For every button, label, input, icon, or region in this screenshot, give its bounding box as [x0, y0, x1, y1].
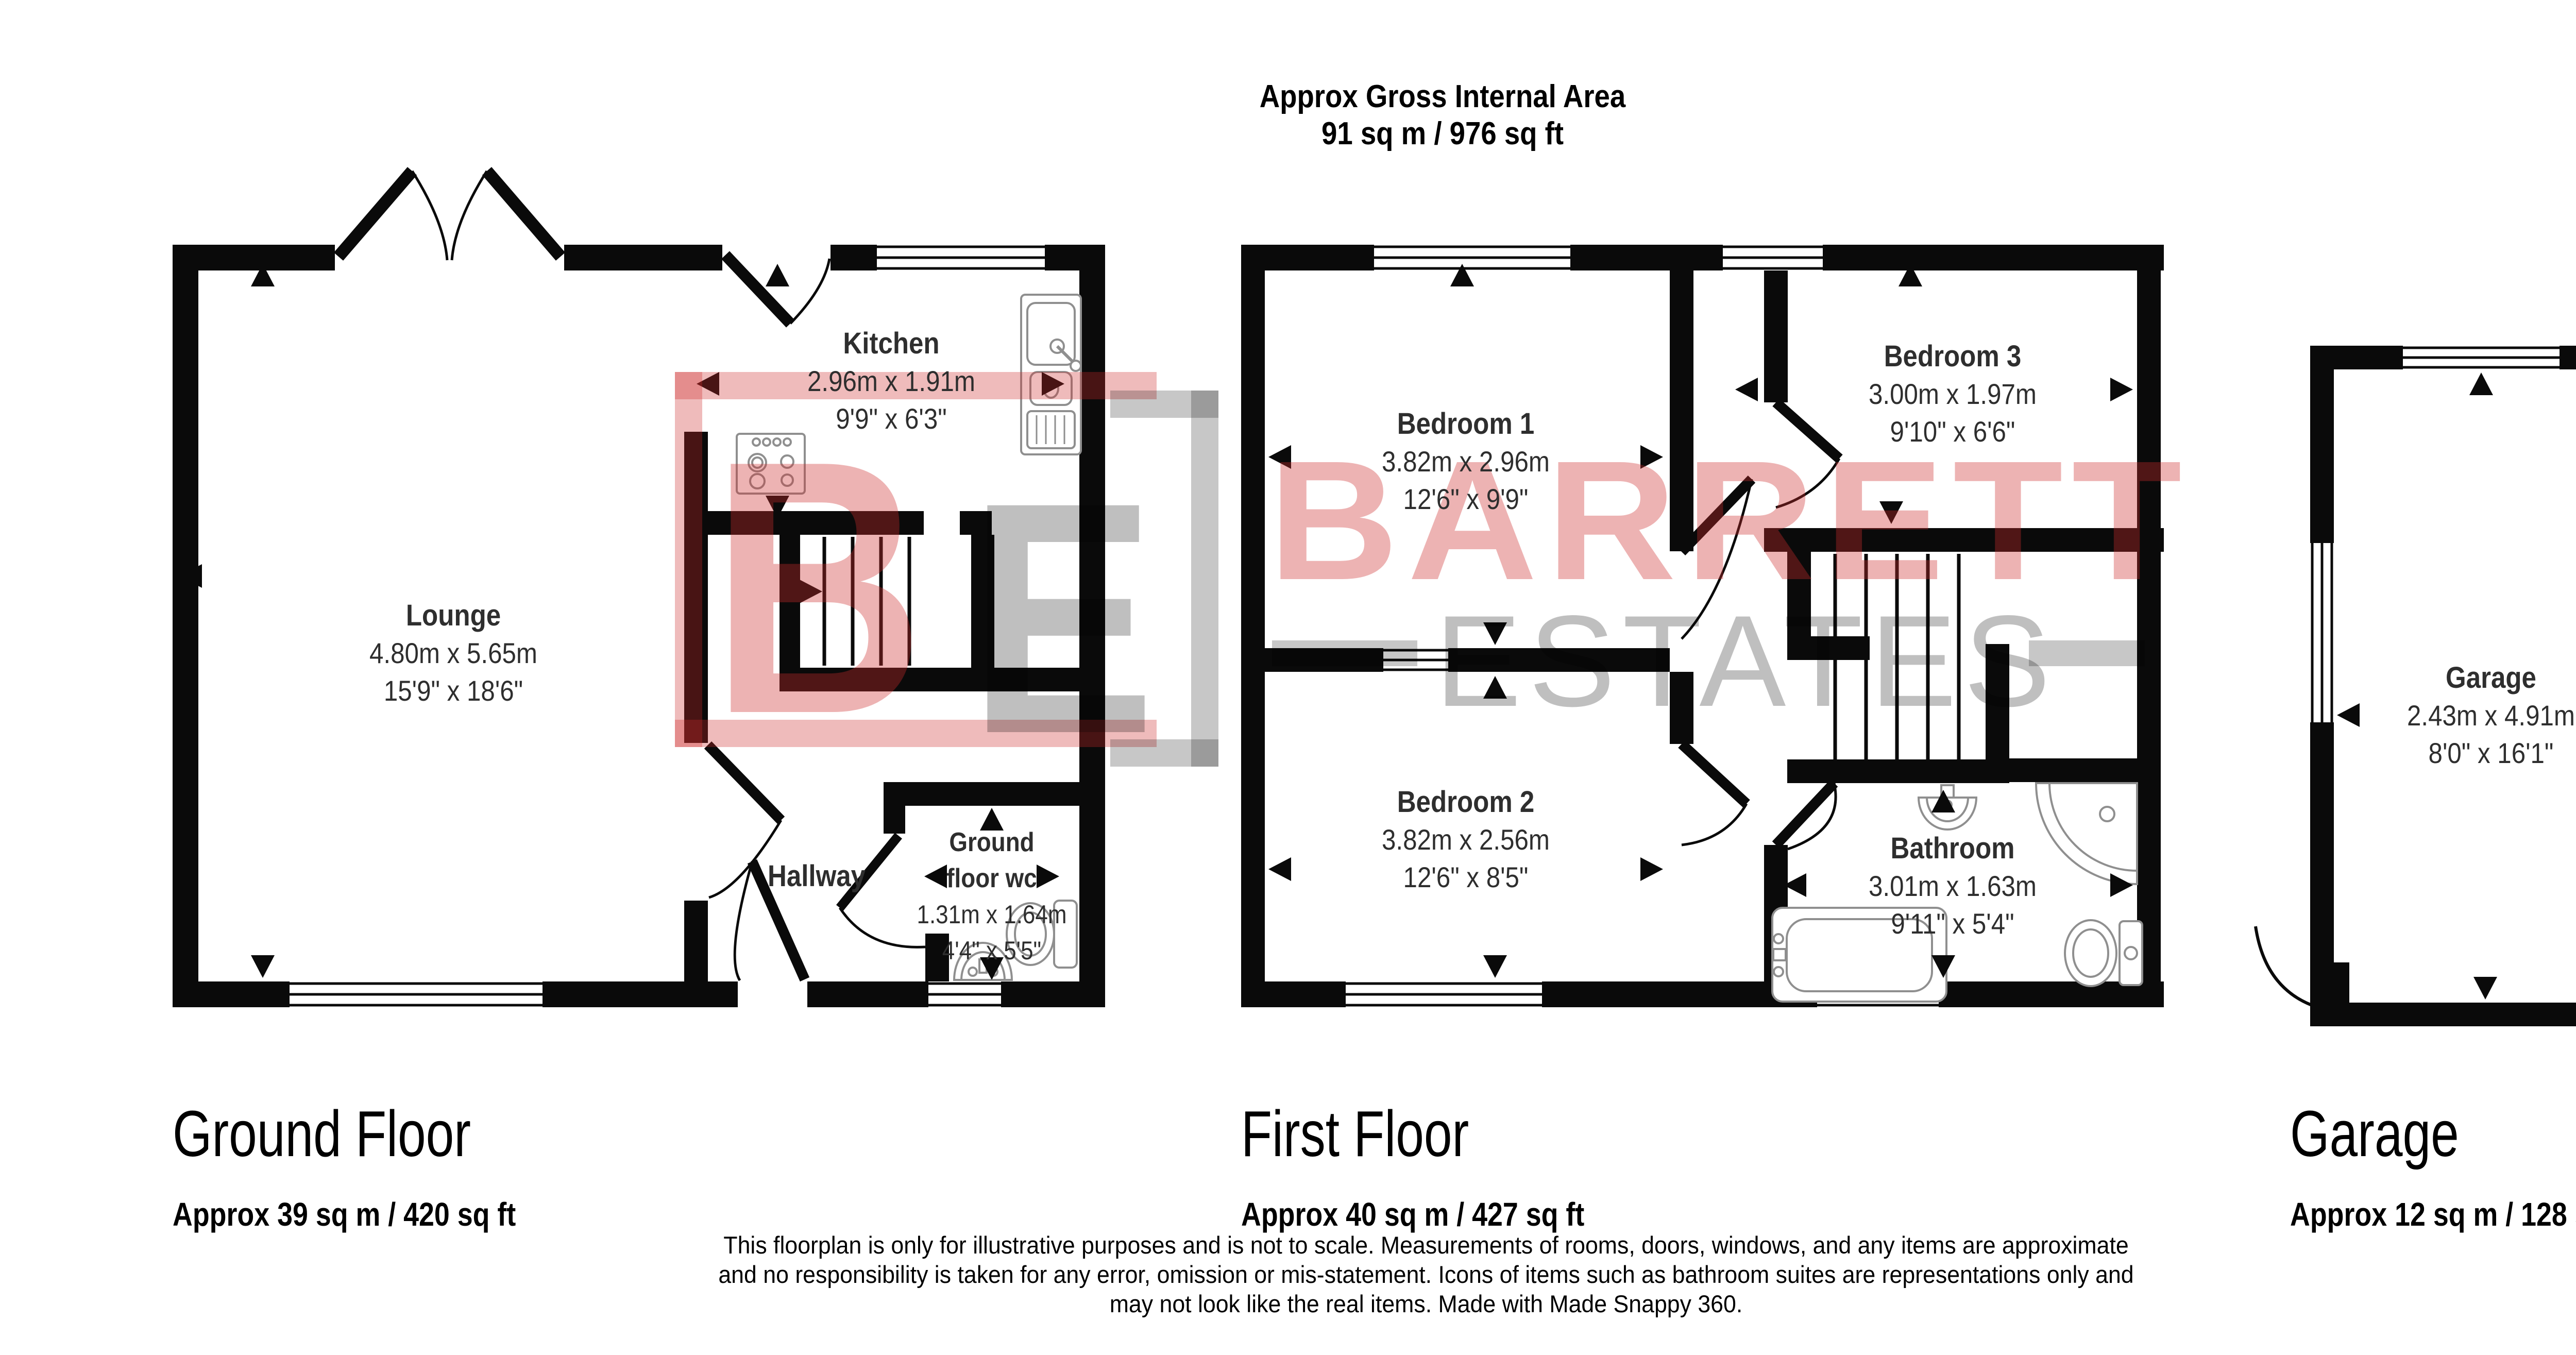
room-label-bedroom-2: Bedroom 2 3.82m x 2.56m 12'6" x 8'5" [1284, 783, 1647, 896]
room-label-bedroom-3: Bedroom 3 3.00m x 1.97m 9'10" x 6'6" [1771, 337, 2134, 450]
gross-internal-area-value: 91 sq m / 976 sq ft [1125, 115, 1760, 153]
watermark-word-estates: ESTATES [1435, 597, 2058, 726]
room-label-bathroom: Bathroom 3.01m x 1.63m 9'11" x 5'4" [1771, 829, 2134, 942]
floor-area-first: Approx 40 sq m / 427 sq ft [1241, 1195, 1650, 1233]
disclaimer-line: This floorplan is only for illustrative … [660, 1230, 2192, 1260]
disclaimer-line: may not look like the real items. Made w… [660, 1289, 2192, 1318]
disclaimer-line: and no responsibility is taken for any e… [660, 1260, 2192, 1289]
page-title: Approx Gross Internal Area 91 sq m / 976… [1125, 78, 1760, 153]
floor-title-ground: Ground Floor [173, 1096, 555, 1171]
room-label-bedroom-1: Bedroom 1 3.82m x 2.96m 12'6" x 9'9" [1284, 405, 1647, 518]
disclaimer: This floorplan is only for illustrative … [660, 1230, 2192, 1318]
floor-title-first: First Floor [1241, 1096, 1533, 1171]
room-label-ground-floor-wc: Ground floor wc 1.31m x 1.64m 4'4" x 5'5… [810, 824, 1173, 969]
room-label-kitchen: Kitchen 2.96m x 1.91m 9'9" x 6'3" [710, 325, 1073, 437]
floor-area-ground: Approx 39 sq m / 420 sq ft [173, 1195, 581, 1233]
floor-title-garage: Garage [2290, 1096, 2506, 1171]
watermark-monogram-e: E [969, 453, 1156, 783]
room-label-garage: Garage 2.43m x 4.91m 8'0" x 16'1" [2310, 659, 2576, 772]
room-label-lounge: Lounge 4.80m x 5.65m 15'9" x 18'6" [272, 597, 635, 709]
gross-internal-area-label: Approx Gross Internal Area [1125, 78, 1760, 115]
floorplan-page: B E BARRETT ESTATES Approx Gross Interna… [0, 0, 2576, 1355]
door-arc [1682, 744, 1747, 845]
watermark-monogram-b: B [711, 407, 925, 768]
french-doors [338, 171, 561, 260]
floor-area-garage: Approx 12 sq m / 128 sq ft [2290, 1195, 2576, 1233]
